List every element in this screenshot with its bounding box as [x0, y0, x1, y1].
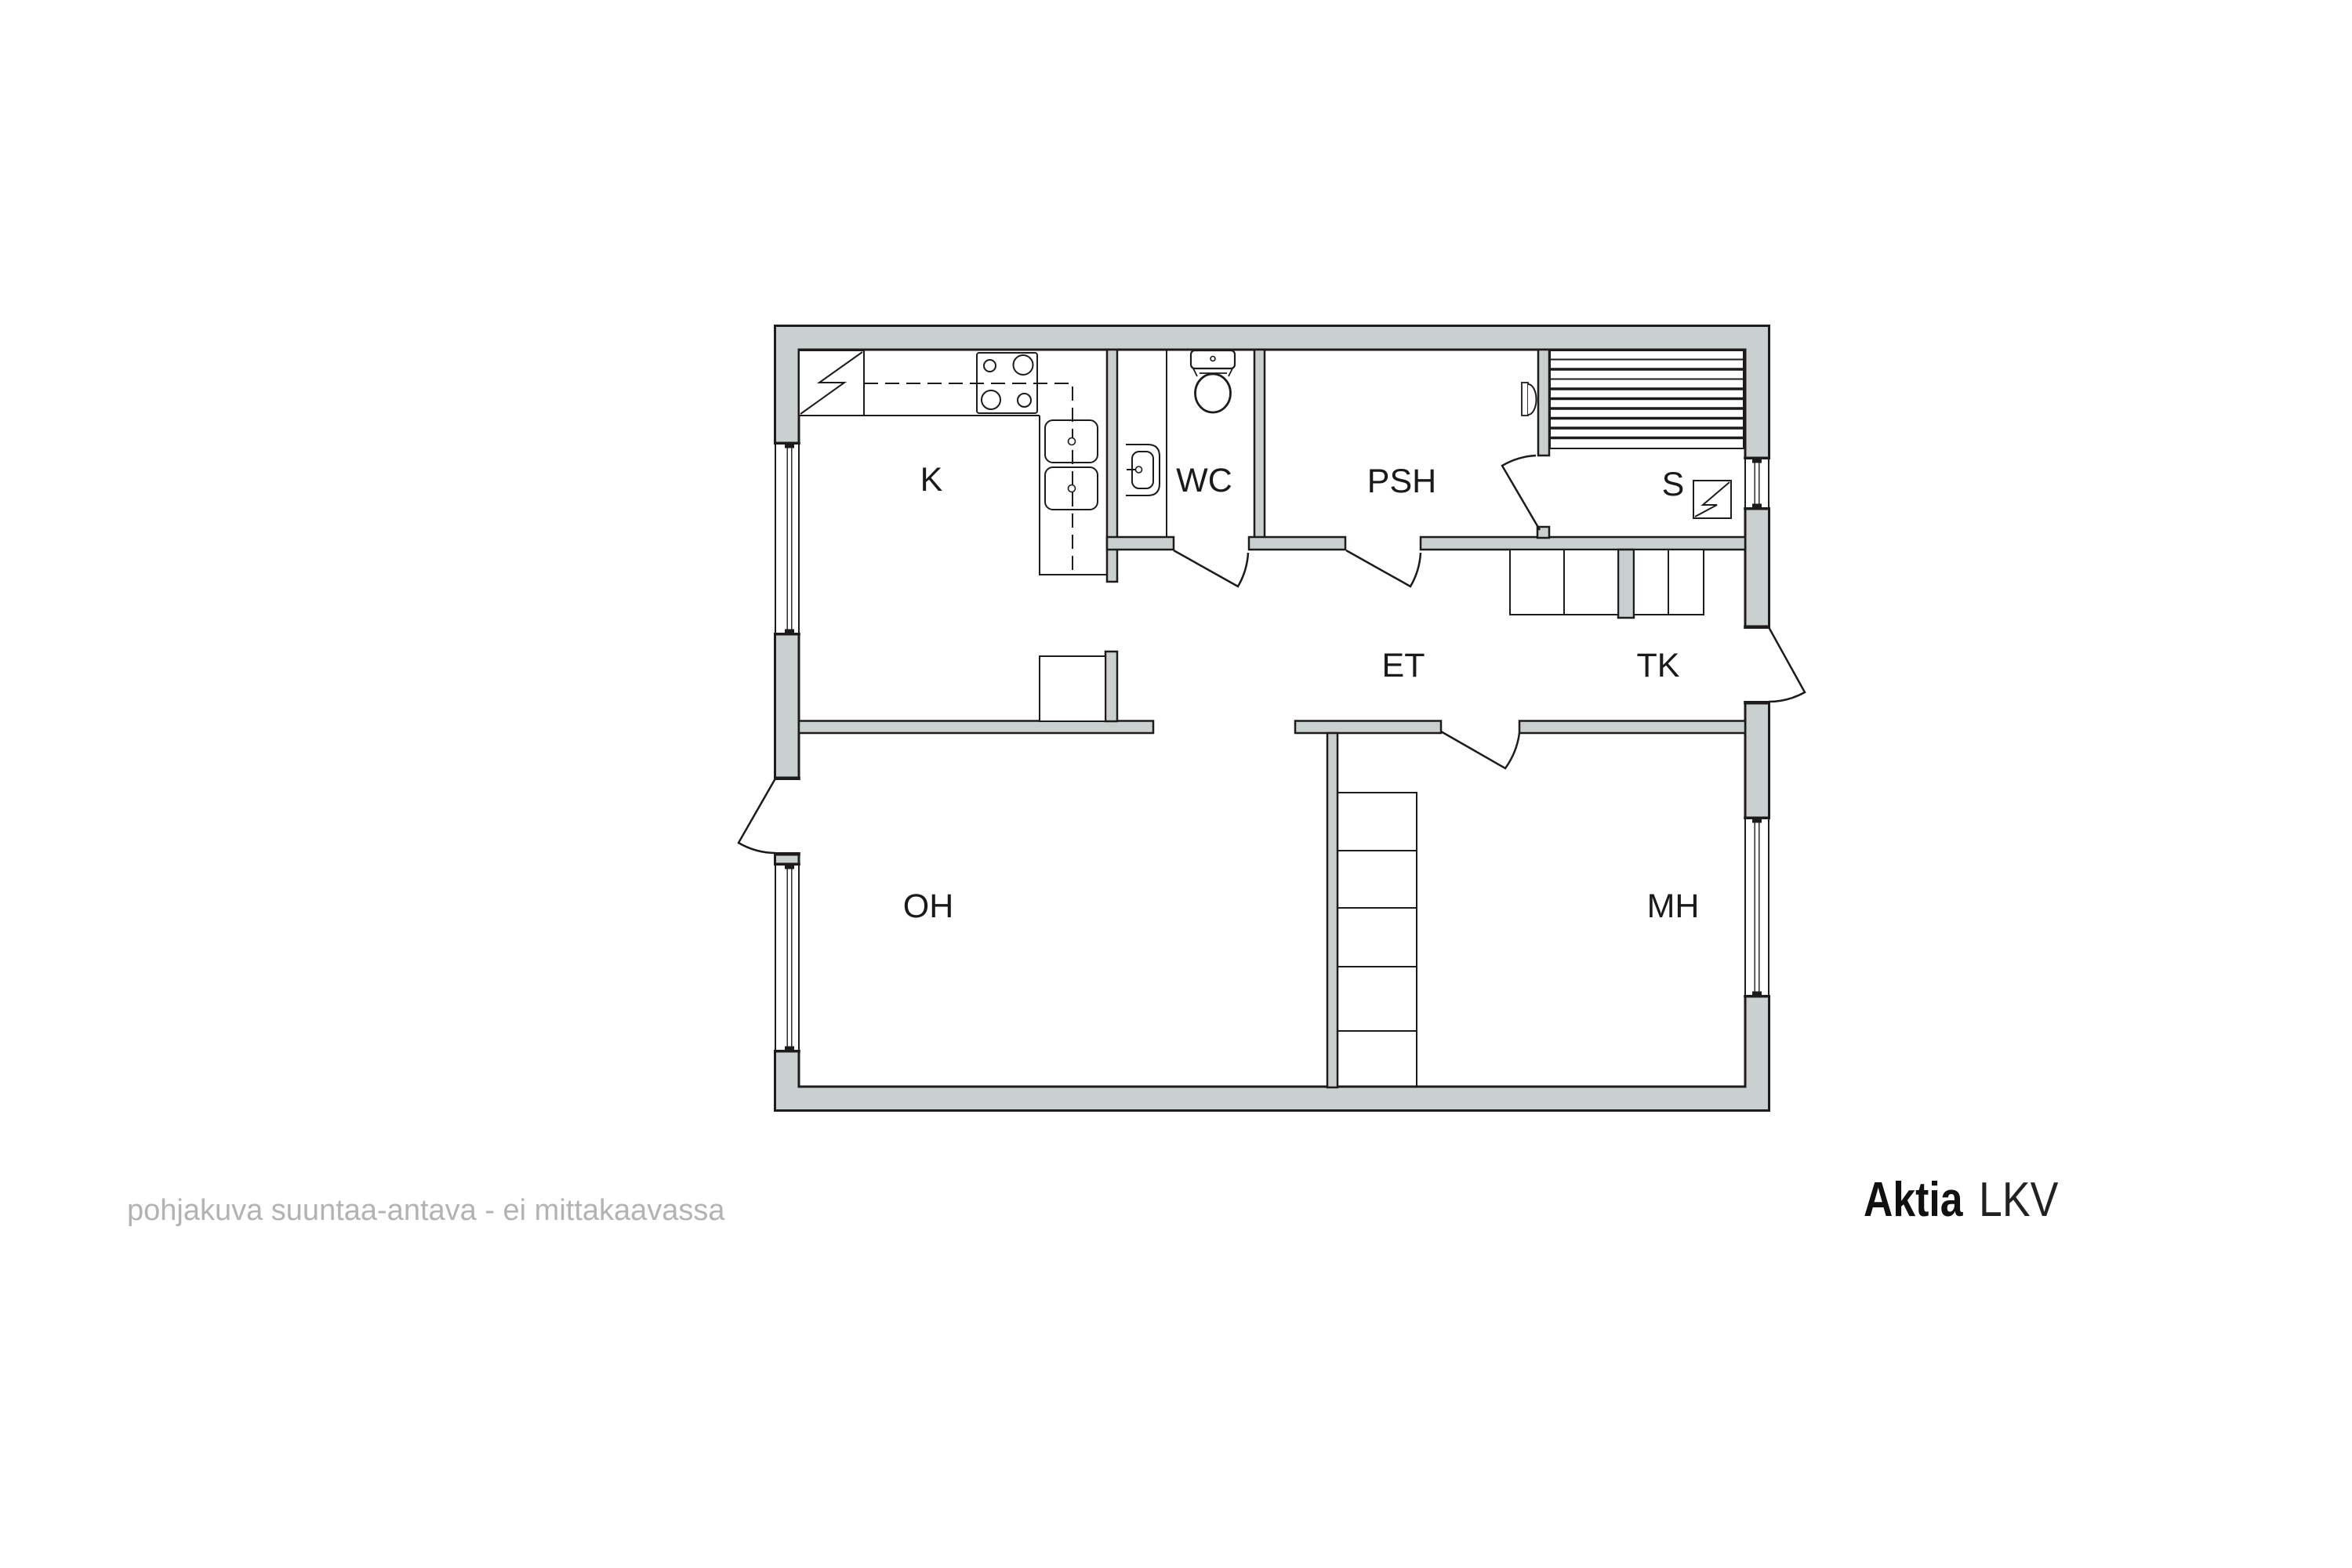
svg-text:PSH: PSH — [1367, 463, 1436, 500]
svg-text:LKV: LKV — [1979, 1173, 2059, 1226]
svg-text:OH: OH — [903, 887, 954, 925]
svg-text:ET: ET — [1382, 647, 1425, 684]
svg-text:S: S — [1662, 466, 1685, 503]
svg-text:TK: TK — [1637, 647, 1680, 684]
svg-text:WC: WC — [1176, 462, 1232, 499]
svg-text:MH: MH — [1647, 887, 1700, 925]
svg-text:K: K — [920, 461, 943, 499]
svg-text:pohjakuva suuntaa-antava - ei: pohjakuva suuntaa-antava - ei mittakaava… — [127, 1194, 725, 1227]
svg-text:Aktia: Aktia — [1864, 1173, 1964, 1227]
